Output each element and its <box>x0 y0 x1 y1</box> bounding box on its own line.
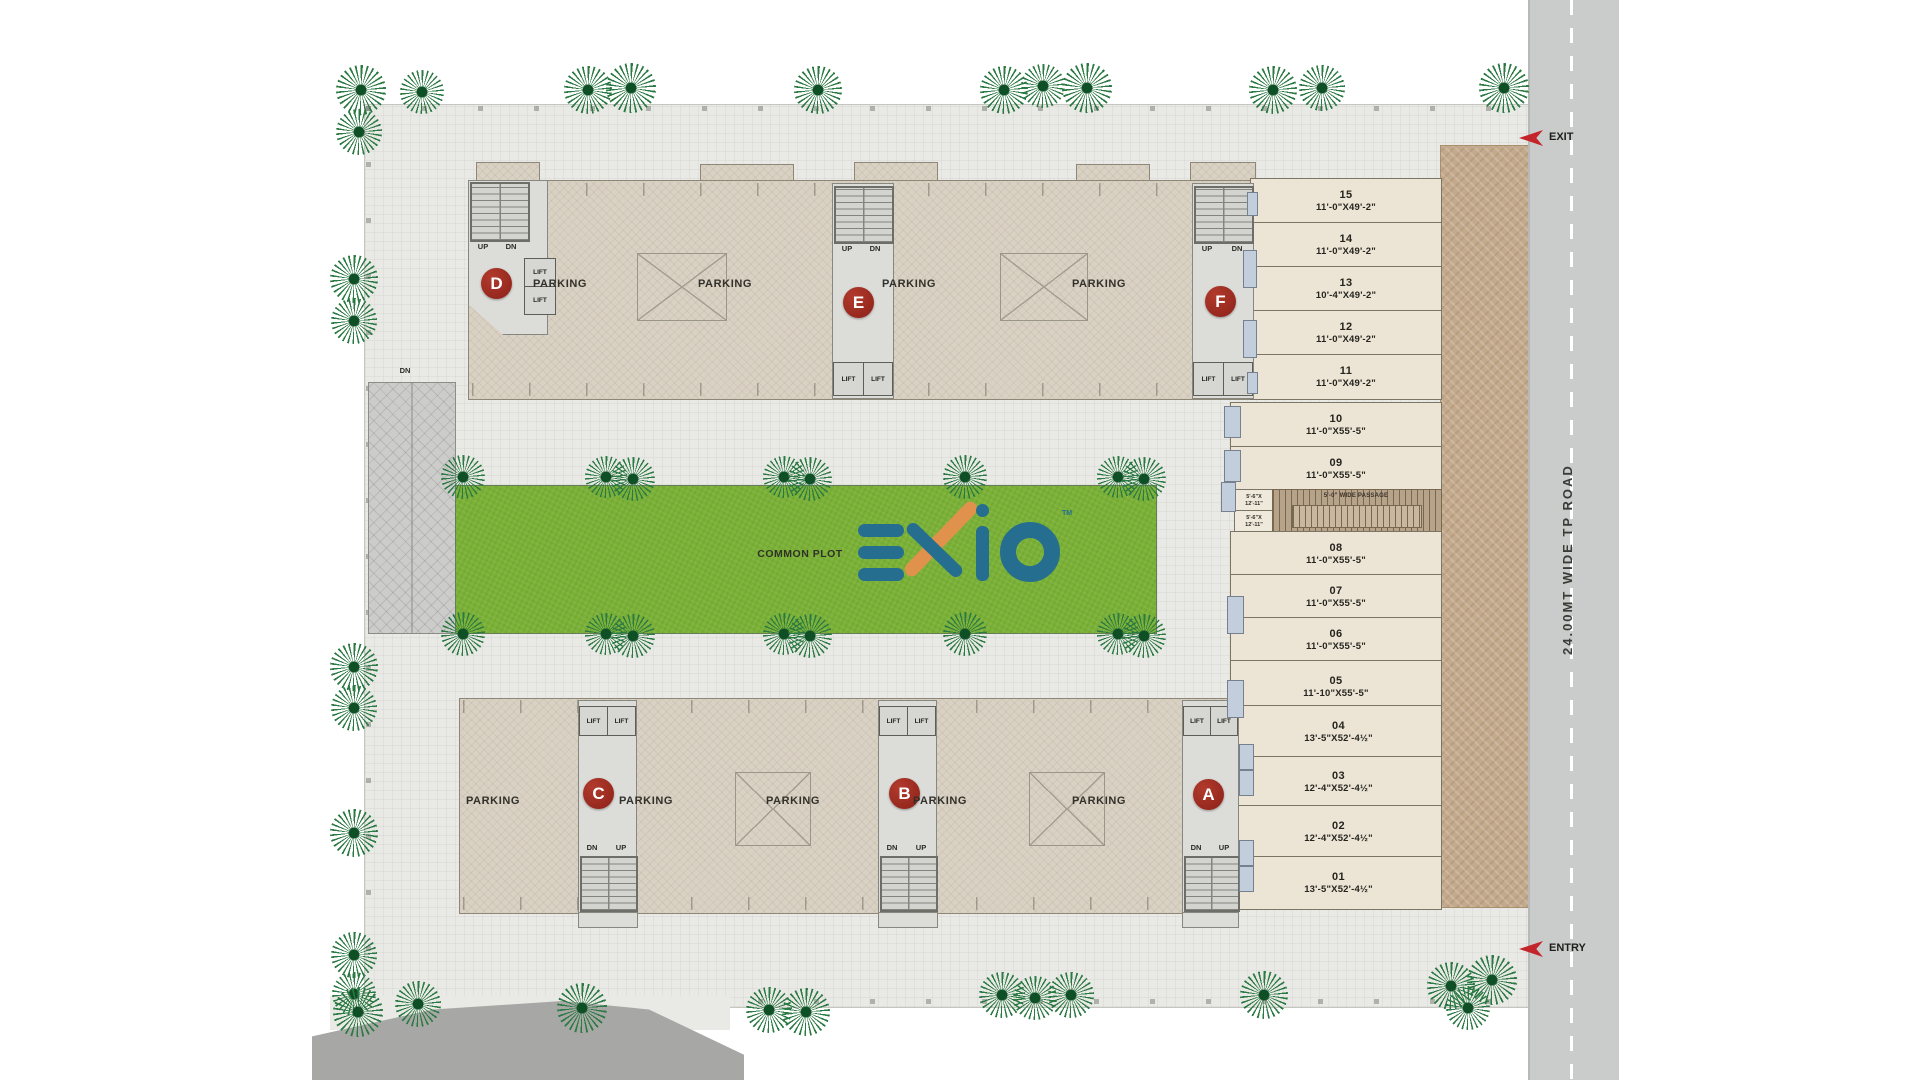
door-marker <box>1239 866 1254 892</box>
shop-size: 11'-0"X49'-2" <box>1316 202 1376 213</box>
side-room: 5'-6"X 12'-11" <box>1234 510 1274 533</box>
shop-number: 04 <box>1332 720 1345 732</box>
shop-unit-13: 13 10'-4"X49'-2" <box>1250 266 1442 312</box>
shop-number: 08 <box>1329 542 1342 554</box>
lift-box: LIFT <box>879 706 908 736</box>
tree-icon <box>331 298 377 344</box>
shop-unit-02: 02 12'-4"X52'-4½" <box>1235 805 1442 858</box>
lift-box: LIFT <box>524 286 556 315</box>
tree-icon <box>611 614 655 658</box>
shop-number: 12 <box>1339 321 1352 333</box>
tree-icon <box>1299 65 1345 111</box>
lift-box: LIFT <box>833 362 864 396</box>
staircase-a <box>1184 856 1240 912</box>
tree-icon <box>788 457 832 501</box>
tree-icon <box>395 981 441 1027</box>
shop-number: 01 <box>1332 871 1345 883</box>
boundary-wall-top <box>366 106 1526 111</box>
parking-label: PARKING <box>1054 278 1144 290</box>
tree-icon <box>606 63 656 113</box>
logo-e-bar <box>858 546 904 559</box>
logo-e-bar <box>858 524 904 537</box>
door-marker <box>1224 450 1241 482</box>
pavement-strip <box>1440 145 1529 908</box>
parking-label: PARKING <box>515 278 605 290</box>
shop-unit-14: 14 11'-0"X49'-2" <box>1250 222 1442 268</box>
shop-size: 11'-0"X55'-5" <box>1306 426 1366 437</box>
block-label-f: F <box>1205 286 1236 317</box>
door-marker <box>1227 596 1244 634</box>
side-room-size-l2: 12'-11" <box>1245 501 1263 507</box>
up-label: UP <box>610 843 632 853</box>
tree-icon <box>1446 986 1490 1030</box>
shop-number: 14 <box>1339 233 1352 245</box>
tree-icon <box>1122 614 1166 658</box>
tree-icon <box>400 70 444 114</box>
shop-unit-09: 09 11'-0"X55'-5" <box>1230 446 1442 491</box>
tree-icon <box>611 457 655 501</box>
staircase-b <box>880 856 938 912</box>
exio-logo: TM <box>858 494 1080 598</box>
dn-label: DN <box>864 244 886 254</box>
void-box <box>1029 772 1105 846</box>
dn-label: DN <box>881 843 903 853</box>
shop-number: 11 <box>1340 365 1352 377</box>
tree-icon <box>1240 971 1288 1019</box>
tree-icon <box>331 685 377 731</box>
door-marker <box>1239 744 1254 770</box>
basement-ramp <box>368 382 456 634</box>
tree-icon <box>1249 66 1297 114</box>
tree-icon <box>330 255 378 303</box>
tree-icon <box>336 109 382 155</box>
shop-unit-08: 08 11'-0"X55'-5" <box>1230 531 1442 576</box>
shop-size: 11'-0"X55'-5" <box>1306 555 1366 566</box>
shop-number: 05 <box>1329 675 1342 687</box>
parking-label: PARKING <box>1054 795 1144 807</box>
shop-number: 09 <box>1329 457 1342 469</box>
shop-unit-01: 01 13'-5"X52'-4½" <box>1235 856 1442 910</box>
shop-unit-06: 06 11'-0"X55'-5" <box>1230 617 1442 662</box>
shop-unit-07: 07 11'-0"X55'-5" <box>1230 574 1442 619</box>
shop-size: 11'-0"X49'-2" <box>1316 378 1376 389</box>
shop-size: 11'-0"X55'-5" <box>1306 598 1366 609</box>
staircase-e <box>834 186 894 244</box>
common-plot-label: COMMON PLOT <box>740 548 860 561</box>
staircase-d <box>470 182 530 242</box>
door-marker <box>1247 192 1258 216</box>
shop-number: 03 <box>1332 770 1345 782</box>
tree-icon <box>333 987 383 1037</box>
side-room: 5'-6"X 12'-11" <box>1234 489 1274 512</box>
door-marker <box>1243 250 1257 288</box>
door-marker <box>1239 840 1254 866</box>
up-label: UP <box>910 843 932 853</box>
up-label: UP <box>836 244 858 254</box>
lift-box: LIFT <box>907 706 936 736</box>
tree-icon <box>794 66 842 114</box>
door-marker <box>1221 482 1236 512</box>
parking-label: PARKING <box>601 795 691 807</box>
up-label: UP <box>472 242 494 252</box>
tree-icon <box>1479 63 1529 113</box>
dn-label: DN <box>500 242 522 252</box>
parking-label: PARKING <box>864 278 954 290</box>
shop-size: 11'-0"X55'-5" <box>1306 641 1366 652</box>
shop-number: 07 <box>1329 585 1342 597</box>
staircase-f <box>1194 186 1254 244</box>
parking-label: PARKING <box>680 278 770 290</box>
road-label: 24.00MT WIDE TP ROAD <box>1560 425 1594 695</box>
parking-label: PARKING <box>448 795 538 807</box>
shop-unit-04: 04 13'-5"X52'-4½" <box>1235 705 1442 758</box>
shop-size: 11'-0"X49'-2" <box>1316 246 1376 257</box>
tree-icon <box>1048 972 1094 1018</box>
up-label: UP <box>1196 244 1218 254</box>
parking-label: PARKING <box>748 795 838 807</box>
shop-size: 13'-5"X52'-4½" <box>1304 733 1373 744</box>
ramp-dn-label: DN <box>390 366 420 378</box>
tree-icon <box>782 988 830 1036</box>
shop-number: 13 <box>1339 277 1352 289</box>
block-label-a: A <box>1193 779 1224 810</box>
shop-number: 02 <box>1332 820 1345 832</box>
tree-icon <box>1122 457 1166 501</box>
tree-icon <box>1021 64 1065 108</box>
tree-icon <box>330 643 378 691</box>
tree-icon <box>943 455 987 499</box>
tree-icon <box>441 455 485 499</box>
logo-i-bar <box>976 526 989 581</box>
lift-box: LIFT <box>579 706 608 736</box>
tree-icon <box>788 614 832 658</box>
void-box <box>735 772 811 846</box>
lift-box: LIFT <box>1183 706 1211 736</box>
tree-icon <box>1062 63 1112 113</box>
logo-o-ring <box>1000 522 1060 582</box>
shop-size: 13'-5"X52'-4½" <box>1304 884 1373 895</box>
logo-e-bar <box>858 568 904 581</box>
shop-size: 10'-4"X49'-2" <box>1316 290 1377 301</box>
door-marker <box>1239 770 1254 796</box>
shop-number: 06 <box>1329 628 1342 640</box>
logo-i-dot <box>976 504 989 517</box>
site-plan: DN COMMON PLOT TM 15 11'-0"X49'-2" 14 <box>0 0 1920 1080</box>
door-marker <box>1224 406 1241 438</box>
up-label: UP <box>1213 843 1235 853</box>
side-room-size-l2: 12'-11" <box>1245 522 1263 528</box>
block-label-e: E <box>843 287 874 318</box>
tree-icon <box>943 612 987 656</box>
lift-box: LIFT <box>863 362 893 396</box>
staircase-c <box>580 856 638 912</box>
shop-size: 11'-10"X55'-5" <box>1303 688 1368 699</box>
shop-size: 11'-0"X49'-2" <box>1316 334 1376 345</box>
tree-icon <box>336 65 386 115</box>
shop-unit-03: 03 12'-4"X52'-4½" <box>1235 756 1442 807</box>
exit-label: EXIT <box>1549 131 1589 145</box>
shop-unit-11: 11 11'-0"X49'-2" <box>1250 354 1442 400</box>
tree-icon <box>441 612 485 656</box>
shop-unit-10: 10 11'-0"X55'-5" <box>1230 402 1442 448</box>
logo-tm: TM <box>1062 510 1072 517</box>
lift-box: LIFT <box>607 706 636 736</box>
parking-label: PARKING <box>895 795 985 807</box>
shop-unit-15: 15 11'-0"X49'-2" <box>1250 178 1442 224</box>
passage-label: 5'-0" WIDE PASSAGE <box>1276 493 1436 501</box>
shop-size: 12'-4"X52'-4½" <box>1304 783 1373 794</box>
door-marker <box>1227 680 1244 718</box>
door-marker <box>1243 320 1257 358</box>
dn-label: DN <box>581 843 603 853</box>
lift-box: LIFT <box>1193 362 1224 396</box>
block-label-d: D <box>481 268 512 299</box>
shop-unit-12: 12 11'-0"X49'-2" <box>1250 310 1442 356</box>
passage-stairs <box>1292 505 1422 528</box>
shop-number: 10 <box>1329 413 1342 425</box>
dn-label: DN <box>1185 843 1207 853</box>
shop-size: 11'-0"X55'-5" <box>1306 470 1366 481</box>
door-marker <box>1247 372 1258 394</box>
shop-size: 12'-4"X52'-4½" <box>1304 833 1373 844</box>
tree-icon <box>557 983 607 1033</box>
shop-number: 15 <box>1339 189 1352 201</box>
tree-icon <box>330 809 378 857</box>
tree-icon <box>564 66 612 114</box>
entry-label: ENTRY <box>1549 942 1599 956</box>
